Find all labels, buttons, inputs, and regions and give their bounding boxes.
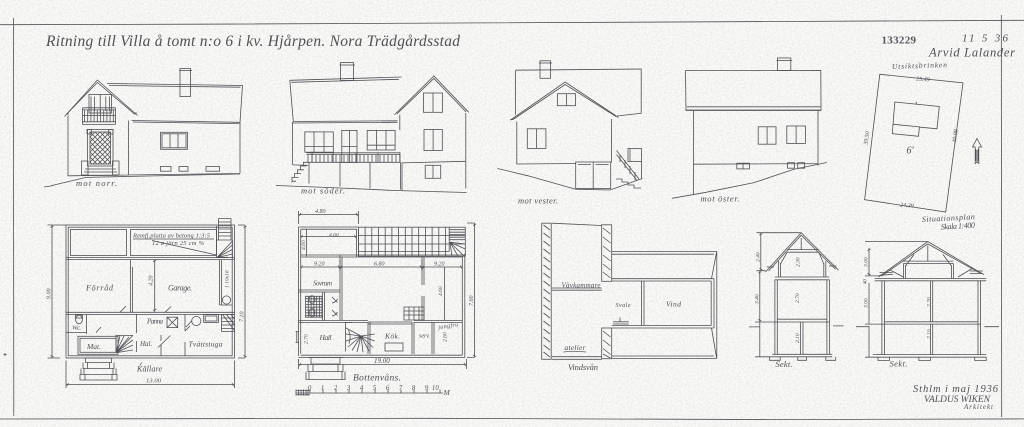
svg-text:3.00: 3.00 (864, 298, 870, 309)
svg-text:6.80: 6.80 (374, 262, 385, 268)
svg-text:2.70: 2.70 (304, 334, 310, 344)
svg-text:9.00: 9.00 (47, 289, 53, 300)
svg-text:1: 1 (321, 384, 325, 392)
svg-text:Tvättstuga: Tvättstuga (189, 340, 223, 349)
svg-text:Kök.: Kök. (384, 332, 400, 341)
svg-text:Arkitekt: Arkitekt (963, 403, 994, 411)
svg-text:2.30: 2.30 (796, 257, 802, 267)
svg-text:6': 6' (907, 146, 915, 157)
svg-text:10: 10 (432, 383, 440, 392)
svg-text:2.60: 2.60 (443, 332, 449, 342)
svg-text:mot vester.: mot vester. (518, 196, 558, 206)
svg-text:2.10: 2.10 (795, 333, 801, 343)
svg-text:24.39: 24.39 (900, 202, 914, 210)
svg-text:Sekt.: Sekt. (890, 359, 908, 369)
svg-text:Källare: Källare (136, 365, 162, 374)
svg-text:Skala 1:400: Skala 1:400 (941, 221, 975, 232)
svg-text:mot öster.: mot öster. (701, 194, 740, 204)
svg-text:Sthlm i maj 1936: Sthlm i maj 1936 (913, 384, 999, 395)
svg-text:W.c.: W.c. (72, 325, 81, 332)
svg-text:2.10: 2.10 (927, 329, 933, 339)
svg-text:4.20: 4.20 (148, 276, 155, 287)
svg-text:7.60: 7.60 (469, 296, 475, 307)
svg-text:4.60: 4.60 (437, 286, 444, 296)
svg-text:13.00: 13.00 (146, 378, 162, 385)
svg-text:3.40: 3.40 (754, 294, 761, 305)
svg-text:Utsiktsbrinken: Utsiktsbrinken (892, 60, 948, 71)
svg-text:Vindsvån: Vindsvån (568, 362, 598, 372)
svg-text:4.80: 4.80 (315, 208, 326, 215)
svg-text:Garage.: Garage. (168, 284, 192, 293)
svg-text:Arvid Lalander: Arvid Lalander (928, 46, 1015, 60)
svg-text:Remfj.platta av betong 1:3:5: Remfj.platta av betong 1:3:5 (132, 233, 211, 240)
svg-text:2.70: 2.70 (795, 293, 801, 303)
svg-text:25.49: 25.49 (916, 76, 930, 84)
svg-text:2.40: 2.40 (755, 252, 762, 262)
svg-text:Hal.: Hal. (139, 340, 153, 348)
svg-text:Vind: Vind (666, 300, 681, 309)
svg-text:Förråd: Förråd (85, 284, 114, 293)
svg-text:Vävkammare: Vävkammare (562, 282, 601, 290)
svg-text:Bottenvåns.: Bottenvåns. (353, 373, 401, 384)
svg-text:133229: 133229 (882, 35, 917, 47)
svg-text:7.10: 7.10 (240, 312, 246, 323)
svg-text:Sovrum: Sovrum (313, 280, 332, 288)
svg-text:Svale: Svale (616, 303, 631, 309)
svg-text:9.20: 9.20 (314, 262, 325, 268)
svg-text:40: 40 (864, 279, 869, 284)
svg-text:M: M (443, 388, 451, 397)
svg-text:11 5 36: 11 5 36 (962, 33, 1009, 45)
svg-text:12 ø järn 25 cm %: 12 ø järn 25 cm % (152, 240, 205, 247)
svg-text:4.60: 4.60 (329, 232, 339, 239)
svg-text:Ritning till Villa å tomt n:o: Ritning till Villa å tomt n:o 6 i kv. Hj… (45, 33, 460, 50)
svg-text:Sekt.: Sekt. (776, 359, 793, 369)
svg-text:4.60: 4.60 (300, 240, 307, 250)
svg-text:mot söder.: mot söder. (301, 186, 345, 196)
svg-text:3.00: 3.00 (864, 257, 870, 268)
svg-text:2.20: 2.20 (927, 297, 933, 307)
svg-text:atelier: atelier (565, 343, 586, 352)
svg-text:19.00: 19.00 (374, 357, 390, 365)
svg-text:Panna: Panna (146, 318, 164, 326)
svg-text:serv.: serv. (419, 334, 430, 340)
svg-text:1 10x16: 1 10x16 (225, 270, 231, 288)
svg-text:9.20: 9.20 (434, 262, 445, 268)
svg-text:Mat.: Mat. (86, 342, 101, 351)
svg-text:Hall: Hall (319, 333, 332, 342)
